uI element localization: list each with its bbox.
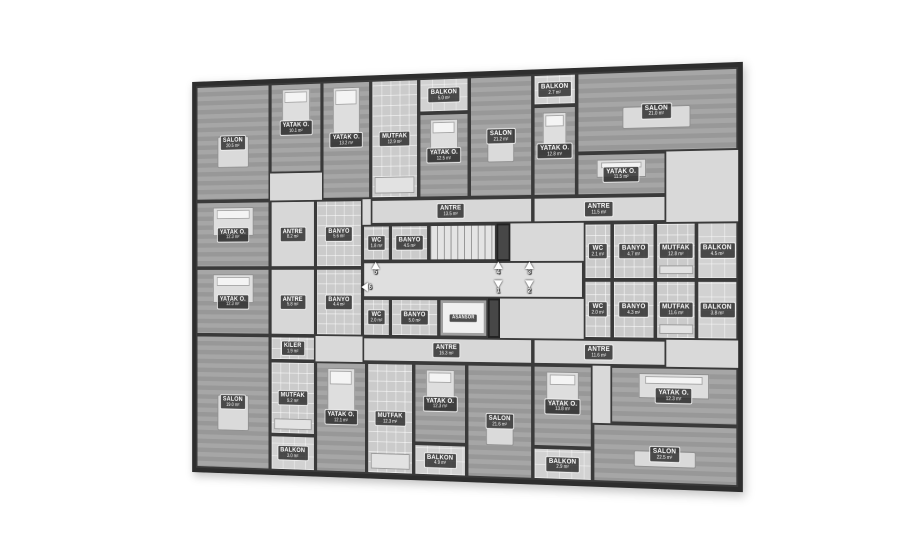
room-label: BALKON4.9 m² — [424, 452, 457, 469]
room-label: MUTFAK12.8 m² — [658, 242, 693, 259]
room-balkon: BALKON2.9 m² — [533, 447, 593, 482]
room-balkon: BALKON5.0 m² — [419, 77, 470, 114]
room-antre: ANTRE11.6 m² — [533, 338, 666, 366]
room-banyo: BANYO4.4 m² — [316, 268, 363, 337]
room-label: BALKON2.9 m² — [545, 456, 579, 473]
room-label: SALON21.0 m² — [641, 102, 671, 119]
floor-plan-canvas: SALON20.5 m²YATAK O.10.1 m²YATAK O.13.2 … — [0, 0, 898, 556]
room-wc: WC2.0 m² — [584, 280, 612, 339]
room-label: WC2.0 m² — [588, 301, 608, 318]
room-label: ANTRE13.5 m² — [437, 203, 465, 219]
room-balkon: BALKON3.0 m² — [270, 434, 315, 472]
unit-5-entrance-arrow-icon: 5 — [372, 262, 380, 276]
room-label: MUTFAK11.6 m² — [658, 301, 693, 318]
room-label: ANTRE11.6 m² — [584, 344, 613, 361]
room-label: ANTRE16.3 m² — [432, 342, 460, 358]
unit-2-entrance-arrow-icon: 2 — [525, 280, 534, 294]
room-salon: SALON21.6 m² — [467, 364, 533, 480]
room-mutfak: MUTFAK12.3 m² — [367, 362, 414, 475]
room-balkon: BALKON3.8 m² — [696, 280, 738, 341]
room-label: YATAK O.12.3 m² — [423, 395, 458, 412]
room-banyo: BANYO4.7 m² — [612, 222, 655, 280]
room-mutfak: MUTFAK11.6 m² — [655, 280, 696, 340]
room-salon: SALON21.2 m² — [469, 74, 533, 198]
room-wc: WC2.1 m² — [584, 222, 612, 279]
room-label: BANYO4.3 m² — [618, 301, 649, 318]
shaft — [497, 223, 511, 261]
counter-icon — [371, 453, 410, 470]
room-mutfak: MUTFAK12.9 m² — [371, 78, 419, 199]
room-label: YATAK O.11.5 m² — [603, 165, 640, 182]
room-label: SALON22.5 m² — [649, 446, 679, 464]
room-label: YATAK O.12.3 m² — [655, 387, 693, 404]
room-label: BANYO4.7 m² — [618, 243, 649, 260]
stairs — [429, 224, 497, 262]
room-banyo: BANYO5.0 m² — [390, 298, 438, 337]
room-label: BALKON5.0 m² — [427, 87, 460, 104]
room-label: ANTRE5.8 m² — [280, 294, 306, 310]
room-mutfak: MUTFAK9.2 m² — [270, 361, 315, 436]
floor-plan: SALON20.5 m²YATAK O.10.1 m²YATAK O.13.2 … — [192, 62, 743, 492]
room-mutfak: MUTFAK12.8 m² — [655, 222, 696, 280]
room-salon: SALON21.0 m² — [577, 67, 739, 154]
room-ki-ler: KİLER1.9 m² — [270, 335, 315, 361]
room-label: ASANSÖR — [449, 313, 478, 322]
room-label: WC2.0 m² — [367, 309, 385, 325]
room-label: MUTFAK9.2 m² — [277, 390, 308, 406]
room-yatak-o: YATAK O.12.5 m² — [419, 112, 470, 199]
room-label: YATAK O.12.3 m² — [217, 294, 249, 310]
room-banyo: BANYO4.5 m² — [390, 224, 428, 261]
room-label: SALON19.0 m² — [220, 394, 246, 410]
room-yatak-o: YATAK O.11.5 m² — [577, 152, 667, 197]
room-label: YATAK O.12.1 m² — [324, 409, 358, 426]
room-label: BANYO4.4 m² — [325, 294, 353, 310]
room-label: KİLER1.9 m² — [281, 340, 305, 356]
room-yatak-o: YATAK O.12.3 m² — [196, 268, 270, 335]
room-label: ANTRE11.5 m² — [584, 201, 613, 218]
room-label: BANYO5.0 m² — [400, 310, 429, 326]
room-antre: ANTRE11.5 m² — [533, 195, 666, 223]
room-label: YATAK O.13.2 m² — [329, 132, 363, 149]
room-balkon: BALKON4.5 m² — [696, 221, 738, 280]
room-label: WC1.8 m² — [367, 235, 385, 251]
room-label: WC2.1 m² — [588, 243, 608, 259]
room-antre: ANTRE5.8 m² — [270, 268, 315, 336]
room-antre: ANTRE8.2 m² — [270, 200, 315, 268]
room-salon: SALON19.0 m² — [196, 335, 270, 471]
bed-icon — [333, 87, 360, 138]
room-antre: ANTRE13.5 m² — [371, 197, 533, 225]
room-label: SALON21.2 m² — [487, 128, 516, 145]
room-balkon: BALKON2.7 m² — [533, 73, 577, 107]
room-label: YATAK O.12.8 m² — [537, 143, 573, 160]
room-salon: SALON22.5 m² — [593, 423, 739, 487]
room-label: MUTFAK12.9 m² — [379, 131, 411, 148]
room-label: ANTRE8.2 m² — [280, 226, 306, 242]
room-label: YATAK O.12.5 m² — [427, 147, 462, 164]
room-label: BANYO4.5 m² — [395, 235, 424, 251]
room-label: YATAK O.13.8 m² — [544, 398, 580, 415]
unit-6-entrance-arrow-icon: 6 — [361, 282, 372, 291]
room-wc: WC2.0 m² — [363, 298, 391, 337]
room-banyo: BANYO5.6 m² — [316, 199, 363, 268]
room-yatak-o: YATAK O.12.3 m² — [610, 366, 738, 427]
room-yatak-o: YATAK O.12.3 m² — [414, 363, 467, 445]
room-yatak-o: YATAK O.10.1 m² — [270, 82, 322, 174]
room-label: SALON21.6 m² — [485, 413, 514, 430]
room-label: MUTFAK12.3 m² — [374, 410, 406, 427]
room-label: YATAK O.12.3 m² — [217, 227, 249, 243]
counter-icon — [375, 176, 415, 194]
unit-3-entrance-arrow-icon: 3 — [525, 261, 534, 275]
room-yatak-o: YATAK O.13.8 m² — [533, 365, 593, 449]
unit-1-entrance-arrow-icon: 1 — [494, 280, 503, 294]
room-label: BALKON3.8 m² — [699, 302, 735, 319]
room-asans-r: ASANSÖR — [439, 298, 488, 337]
corridor — [363, 261, 584, 299]
room-balkon: BALKON4.9 m² — [414, 443, 467, 477]
room-label: SALON20.5 m² — [220, 135, 246, 151]
room-label: BALKON4.5 m² — [699, 242, 735, 259]
counter-icon — [659, 265, 693, 274]
room-label: BALKON3.0 m² — [277, 445, 308, 462]
room-yatak-o: YATAK O.12.8 m² — [533, 105, 577, 197]
room-antre: ANTRE16.3 m² — [363, 336, 533, 364]
counter-icon — [274, 418, 312, 430]
room-label: BANYO5.6 m² — [325, 226, 353, 242]
room-yatak-o: YATAK O.12.3 m² — [196, 201, 270, 269]
room-salon: SALON20.5 m² — [196, 84, 270, 202]
unit-4-entrance-arrow-icon: 4 — [494, 262, 503, 276]
room-label: YATAK O.10.1 m² — [279, 120, 312, 136]
room-yatak-o: YATAK O.13.2 m² — [322, 80, 371, 200]
room-wc: WC1.8 m² — [363, 225, 391, 262]
room-yatak-o: YATAK O.12.1 m² — [316, 361, 367, 473]
counter-icon — [659, 325, 693, 335]
room-banyo: BANYO4.3 m² — [612, 280, 655, 340]
shaft — [488, 299, 500, 338]
room-label: BALKON2.7 m² — [538, 81, 572, 98]
